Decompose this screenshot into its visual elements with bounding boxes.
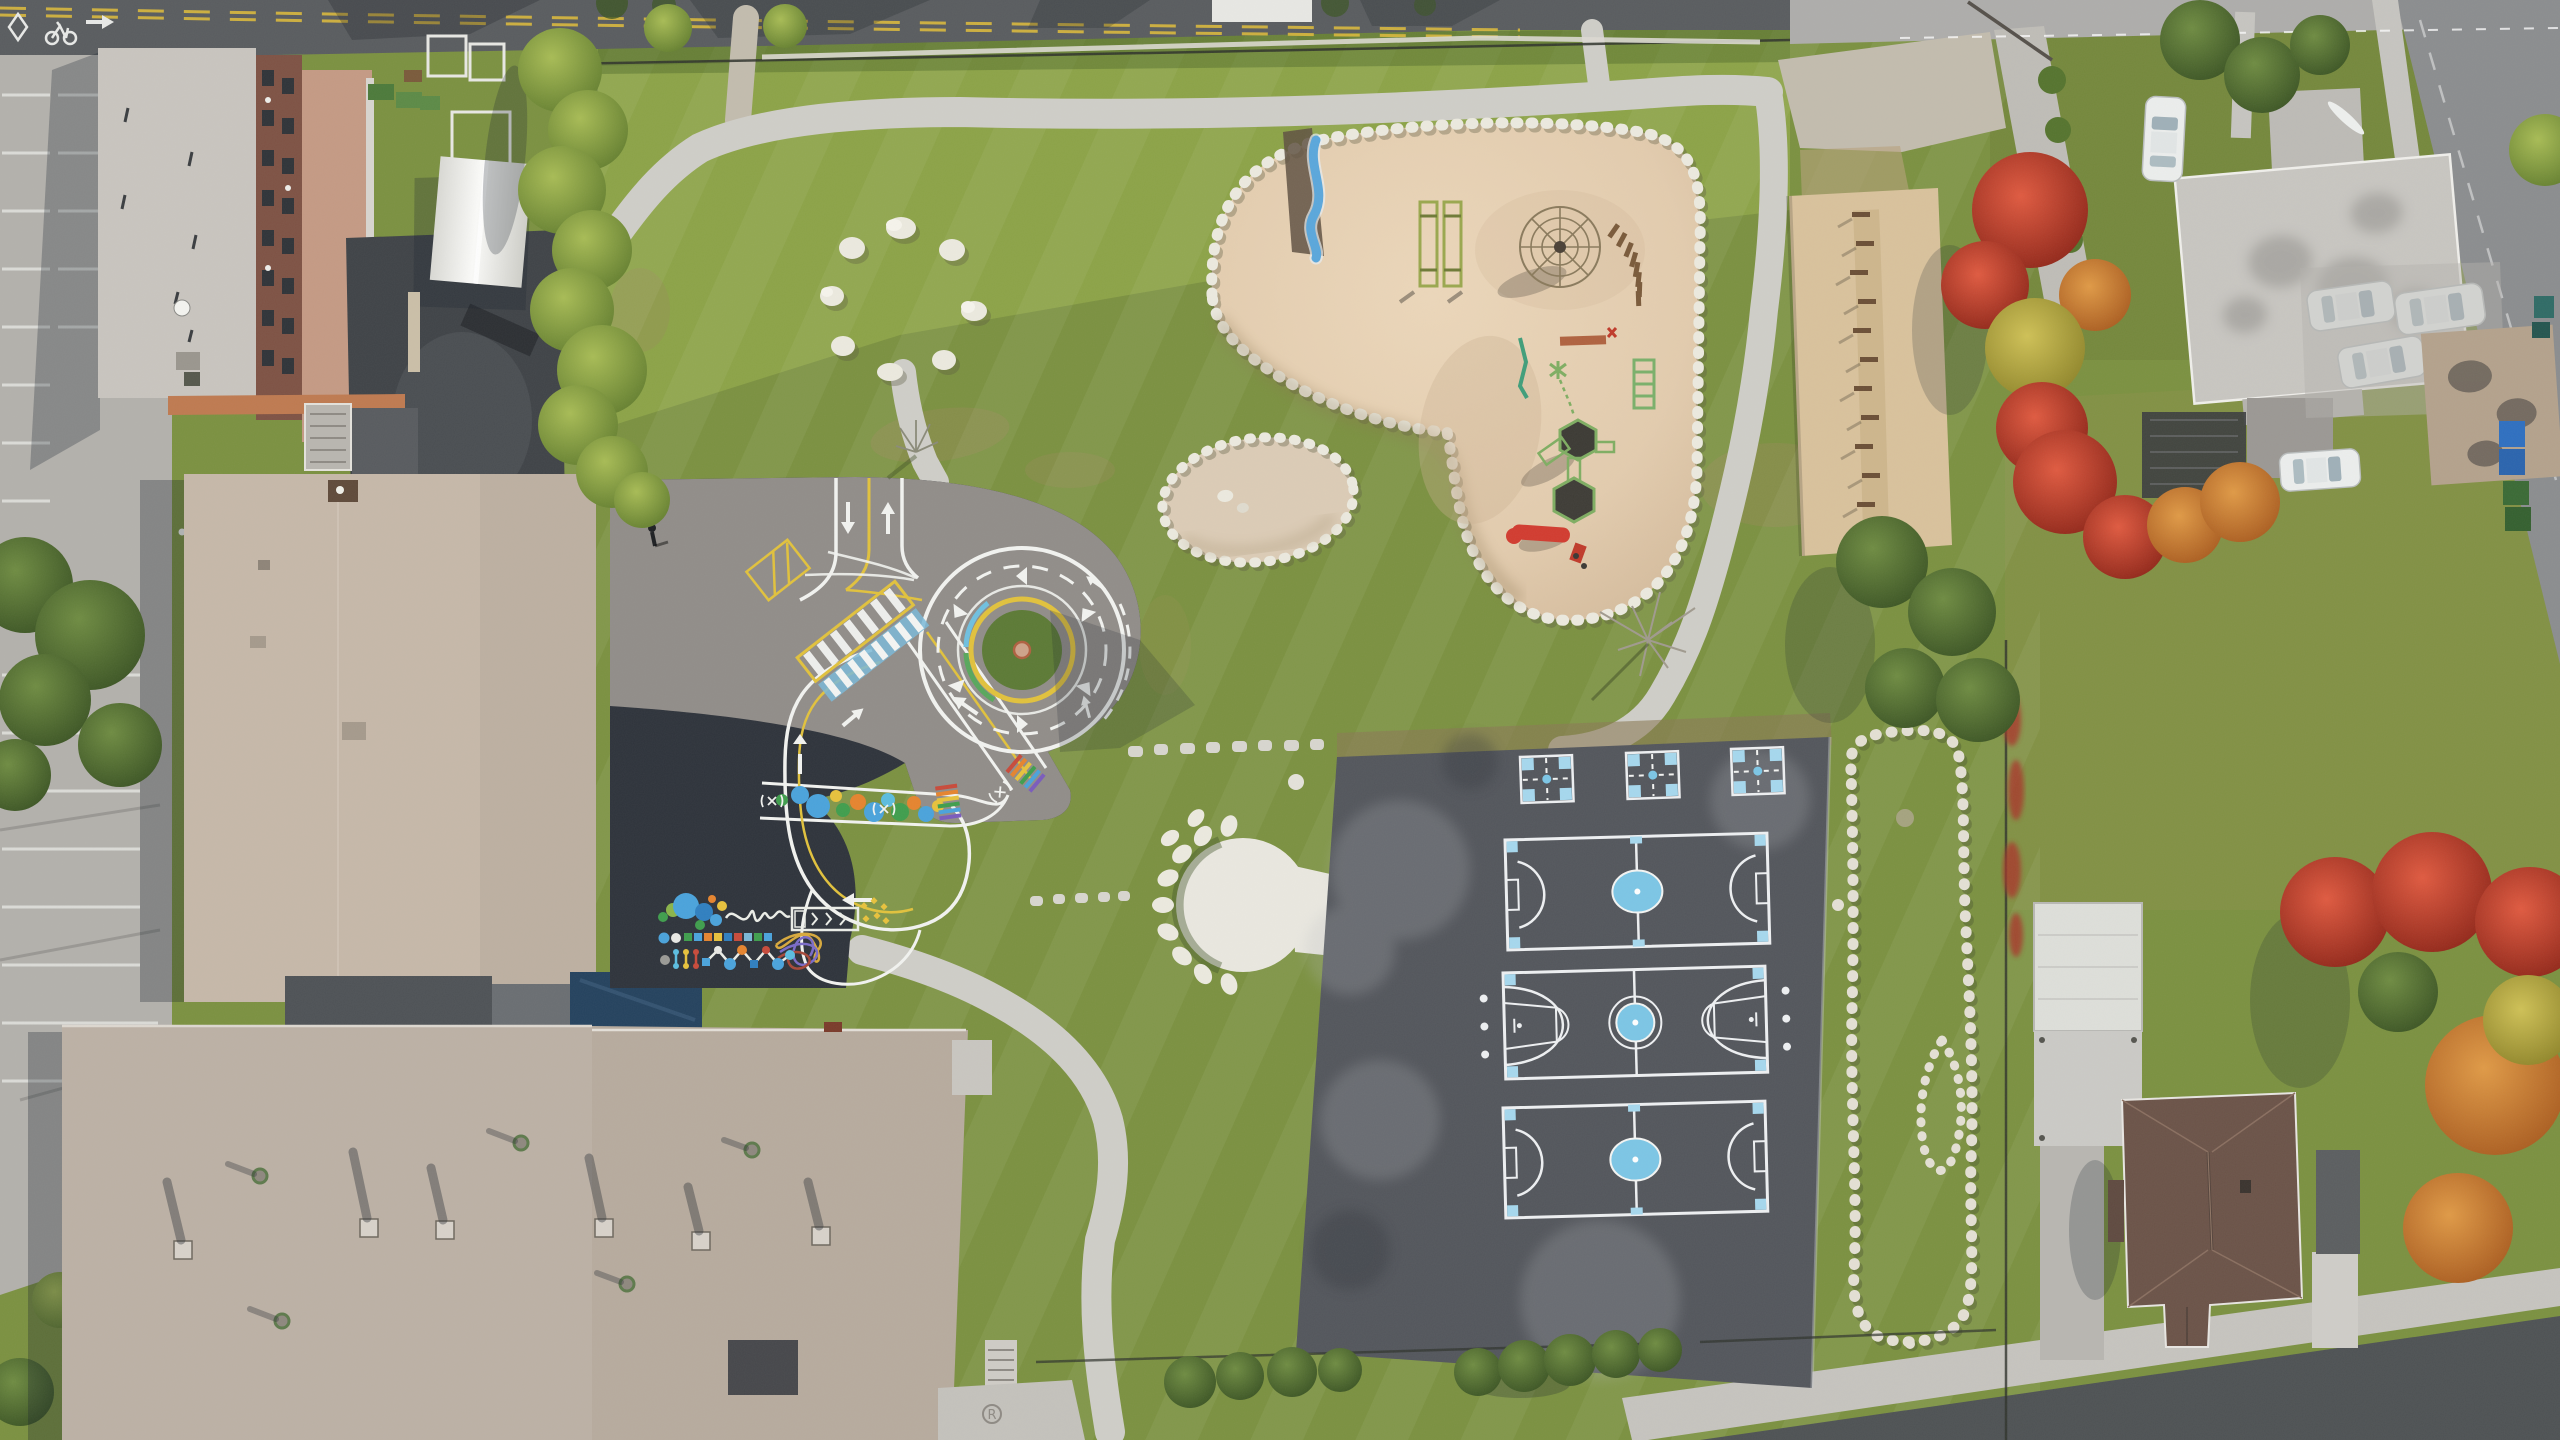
aerial-photo-schoolyard: R — [0, 0, 2560, 1440]
photo-grain — [0, 0, 2560, 1440]
